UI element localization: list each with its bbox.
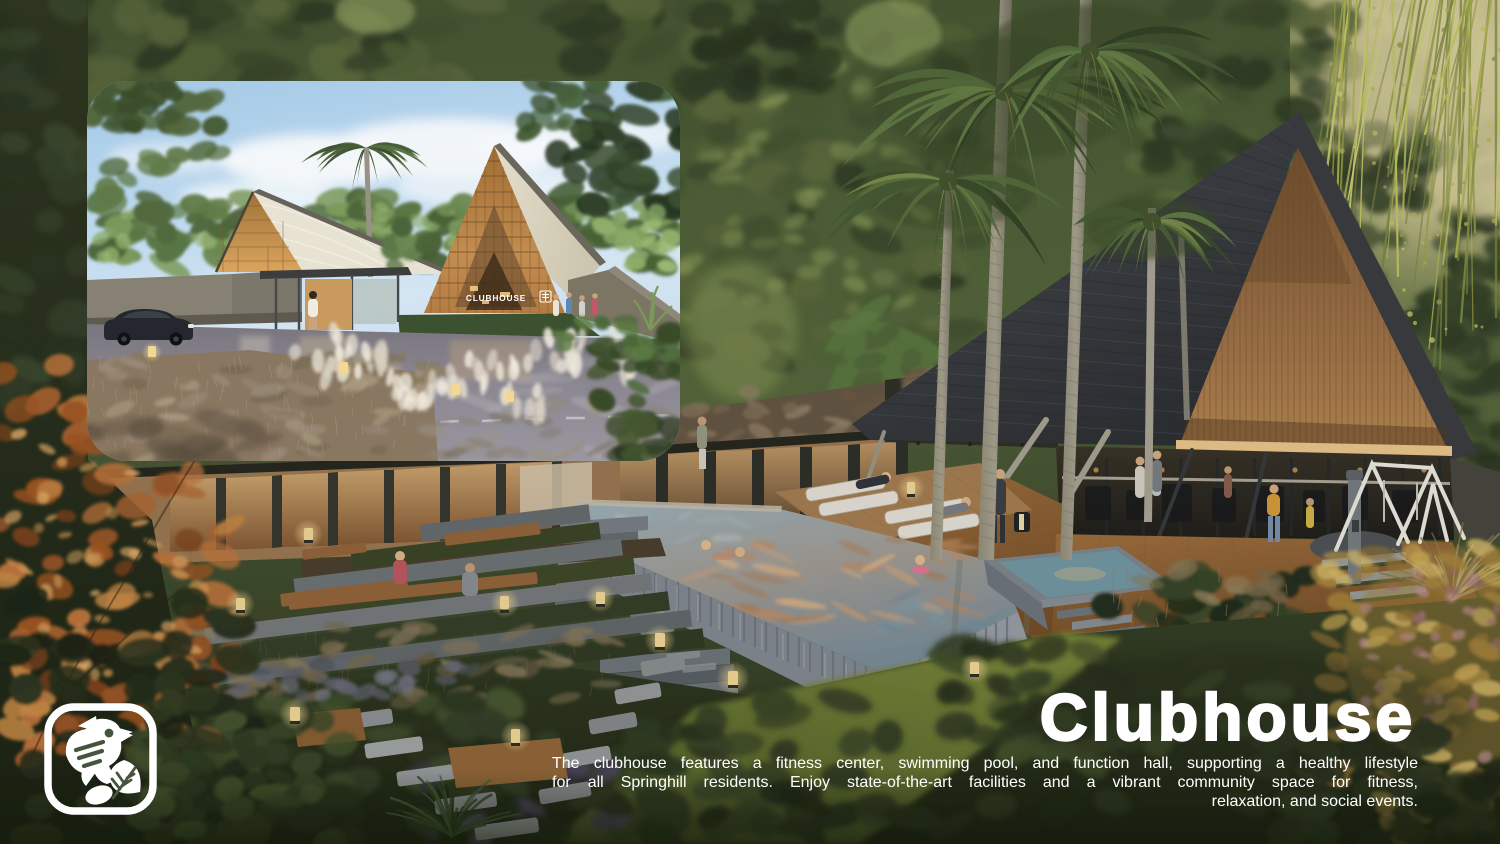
svg-text:CLUBHOUSE: CLUBHOUSE [466,293,526,303]
